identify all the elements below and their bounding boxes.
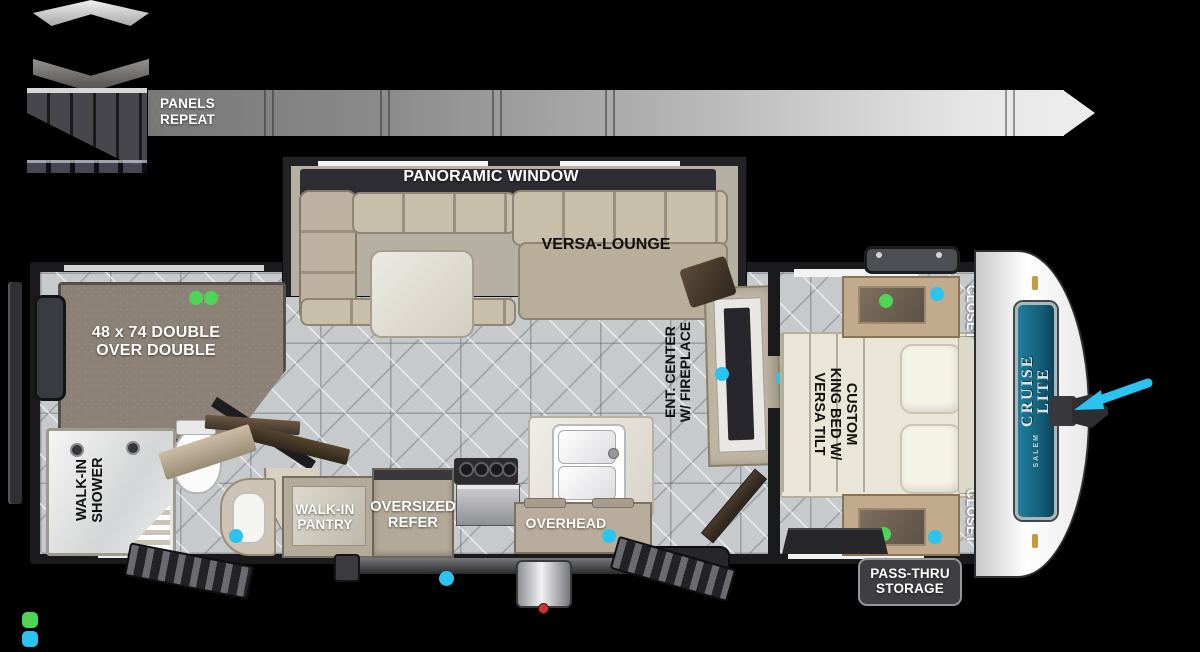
legend-swatch-green[interactable] [22, 612, 38, 628]
cabinet-door-tab [592, 498, 634, 508]
marker-dot-cyan[interactable] [715, 367, 729, 381]
rack-bolt-icon [876, 252, 882, 258]
bunk-bed-label: 48 x 74 DOUBLE OVER DOUBLE [66, 324, 246, 359]
ent-center-label: ENT. CENTER W/ FIREPLACE [663, 297, 699, 447]
marker-dot-cyan[interactable] [928, 530, 942, 544]
marker-dot-cyan[interactable] [930, 287, 944, 301]
versa-lounge-label: VERSA-LOUNGE [516, 236, 696, 254]
marker-dot-green[interactable] [204, 291, 218, 305]
hitch-coupler [1072, 394, 1108, 428]
king-bed-label: CUSTOM KING BED W/ VERSA TILT [806, 339, 858, 489]
bedroom-divider-wall [768, 408, 780, 560]
rear-bumper [8, 282, 22, 504]
bar-divider [1005, 90, 1015, 136]
marker-dot-cyan[interactable] [602, 529, 616, 543]
pillow [900, 424, 962, 494]
panoramic-window-label: PANORAMIC WINDOW [341, 168, 641, 186]
window-highlight-strip [318, 161, 488, 166]
closet-window-slot [858, 286, 926, 324]
bar-divider [380, 90, 390, 136]
floorplan-canvas: PANELS REPEAT PANORAMIC WINDOW VERSA-LOU… [0, 0, 1200, 652]
legend-swatch-cyan[interactable] [22, 631, 38, 647]
dinette-bench-back [352, 192, 516, 234]
bedroom-divider-wall [768, 270, 780, 356]
rack-bolt-icon [936, 252, 942, 258]
burner-icon [474, 462, 489, 477]
bar-divider [492, 90, 502, 136]
brand-series-label: SALEM [1033, 433, 1040, 468]
cabinet-door-tab [524, 498, 566, 508]
clearance-light-icon [1032, 276, 1038, 290]
top-wall-window-strip [64, 265, 264, 271]
roof-rack [864, 246, 960, 274]
walk-in-shower-label: WALK-IN SHOWER [75, 430, 115, 550]
marker-dot-green[interactable] [879, 294, 893, 308]
rear-wall-window [34, 295, 66, 401]
roof-layer-mid-icon [33, 56, 149, 92]
marker-dot-green[interactable] [189, 291, 203, 305]
water-heater-tank [516, 560, 572, 608]
window-highlight-strip [560, 161, 680, 166]
roof-layer-top-icon [33, 0, 149, 26]
wall-panel-stack-icon [27, 88, 147, 166]
panel-strip-row-icon [27, 160, 147, 173]
pillow [900, 344, 962, 414]
pass-thru-storage-label: PASS-THRU STORAGE [870, 567, 950, 597]
marker-dot-cyan[interactable] [439, 571, 454, 586]
dinette-table [370, 250, 474, 338]
panels-repeat-arrowhead-icon [1063, 90, 1095, 136]
awning-bracket [334, 554, 360, 582]
bedroom-bottom-window [782, 528, 888, 554]
panels-repeat-label: PANELS REPEAT [160, 96, 280, 128]
sink-basin [558, 466, 616, 500]
tank-valve-icon [538, 603, 549, 614]
bar-divider [605, 90, 615, 136]
shower-head-icon [126, 441, 140, 455]
clearance-light-icon [1032, 534, 1038, 548]
faucet-icon [608, 448, 619, 459]
oversized-refer-label: OVERSIZED REFER [361, 500, 465, 532]
burner-icon [502, 462, 517, 477]
walk-in-pantry-label: WALK-IN PANTRY [281, 503, 369, 533]
marker-dot-cyan[interactable] [229, 529, 243, 543]
brand-name-label: CRUISE LITE [1020, 355, 1052, 427]
sink-basin [558, 430, 616, 464]
pass-thru-storage-badge: PASS-THRU STORAGE [858, 558, 962, 606]
burner-icon [459, 462, 474, 477]
